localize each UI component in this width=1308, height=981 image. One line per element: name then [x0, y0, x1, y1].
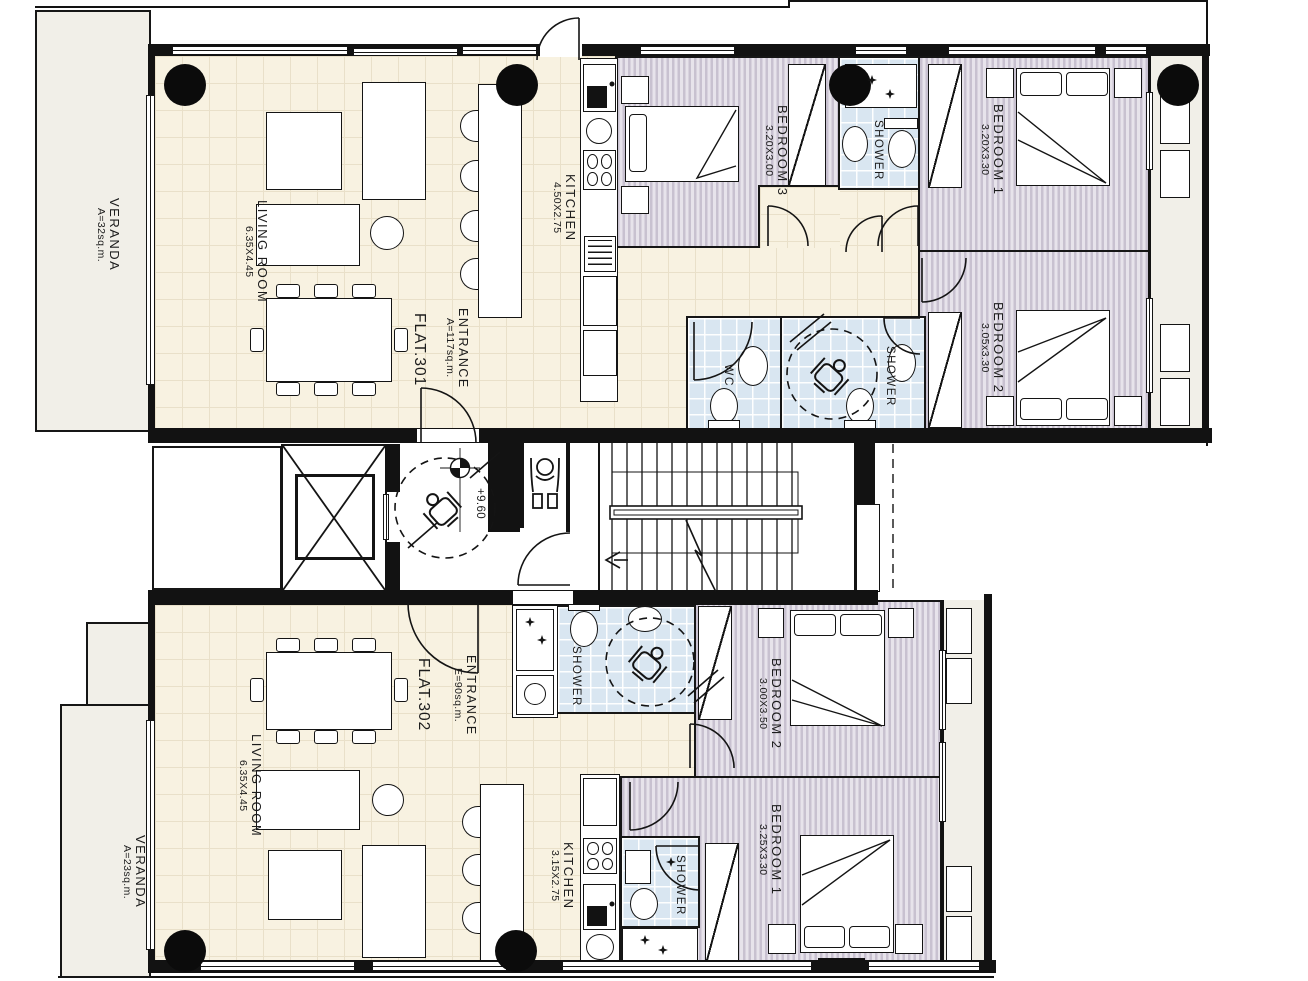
veranda-302-step — [86, 622, 151, 708]
ac-unit — [1160, 378, 1190, 426]
ac-unit — [946, 658, 972, 704]
dining-chair — [352, 382, 376, 396]
wardrobe — [928, 64, 962, 188]
dining-chair — [250, 328, 264, 352]
pillow — [1020, 398, 1062, 420]
window-wall-veranda-301 — [146, 95, 155, 385]
toilet-icon — [630, 888, 658, 920]
nightstand — [768, 924, 796, 954]
entrance-301-label: ENTRANCE A=117sq.m. — [430, 296, 470, 400]
dining-chair — [352, 730, 376, 744]
window — [939, 650, 946, 730]
pillow — [1020, 72, 1062, 96]
kitchen-appliance-icon — [586, 934, 614, 960]
roof-edge — [788, 0, 790, 8]
ac-unit — [946, 608, 972, 654]
elevator-car — [295, 474, 375, 560]
window — [200, 961, 355, 971]
pillow — [1066, 72, 1108, 96]
wardrobe — [928, 312, 962, 428]
stove-icon — [583, 838, 617, 874]
toilet-icon — [888, 130, 916, 168]
ac-unit — [946, 916, 972, 962]
pillow — [1066, 398, 1108, 420]
loveseat — [256, 770, 360, 830]
wall — [385, 444, 400, 492]
coffee-table — [268, 850, 342, 920]
bedroom-2-302-label: BEDROOM 2 3.00X3.50 — [738, 650, 784, 758]
wall-segment — [818, 958, 865, 973]
bedroom-2-301-label: BEDROOM 2 3.05x3.30 — [960, 292, 1006, 404]
wardrobe — [788, 64, 826, 186]
window — [868, 961, 980, 971]
sofa — [362, 82, 426, 200]
shower-small-302-label: SHOWER — [660, 850, 686, 920]
kitchen-island-301 — [478, 84, 522, 318]
ac-unit — [1160, 324, 1190, 372]
wardrobe — [698, 606, 732, 720]
dining-chair — [352, 638, 376, 652]
wall — [520, 440, 524, 528]
dining-chair — [314, 638, 338, 652]
window — [462, 46, 537, 55]
toilet-tank-icon — [884, 118, 918, 129]
sink-basin-icon — [587, 906, 607, 926]
column — [164, 930, 206, 972]
living-301-label: LIVING ROOM 6.35X4.45 — [222, 192, 270, 312]
pillow — [794, 614, 836, 636]
bedroom-1-301-label: BEDROOM 1 3.20X3.30 — [960, 94, 1006, 206]
window — [1146, 92, 1153, 170]
dining-chair — [314, 382, 338, 396]
washbasin-icon — [628, 606, 662, 632]
pillow — [849, 926, 890, 948]
window — [948, 46, 1096, 55]
wall-right-302 — [984, 594, 992, 966]
shower-301-label: SHOWER — [858, 114, 884, 186]
nightstand — [1114, 396, 1142, 426]
wardrobe — [705, 843, 739, 965]
wall — [566, 440, 570, 532]
wall-mid — [148, 428, 1212, 443]
kitchen-cabinet — [583, 330, 617, 376]
kitchen-302-label: KITCHEN 3.15X2.75 — [530, 834, 576, 918]
door-opening — [513, 591, 573, 604]
veranda-301-label: VERANDA A=32sq.m. — [78, 150, 122, 320]
window — [855, 46, 907, 55]
window — [939, 742, 946, 822]
floor-plan: VERANDA A=32sq.m. LIVING ROOM 6.35X4.45 … — [0, 0, 1308, 981]
living-302-label: LIVING ROOM 6.35X4.45 — [216, 724, 264, 848]
column — [1157, 64, 1199, 106]
dining-chair — [276, 284, 300, 298]
seated-person-icon — [531, 458, 559, 508]
nightstand — [1114, 68, 1142, 98]
dining-chair — [276, 382, 300, 396]
window — [172, 46, 348, 55]
roof-edge — [58, 976, 994, 978]
window — [353, 48, 458, 56]
sink-basin-icon — [587, 86, 607, 108]
column — [164, 64, 206, 106]
window — [562, 961, 812, 971]
shower-tray — [622, 928, 698, 964]
shower-mid-301-label: SHOWER — [870, 340, 896, 412]
core-storage-room — [152, 446, 282, 590]
shower-tray — [516, 609, 554, 671]
nightstand — [621, 76, 649, 104]
side-table — [372, 784, 404, 816]
nightstand — [621, 186, 649, 214]
window — [372, 961, 507, 971]
dining-chair — [276, 730, 300, 744]
bedroom-1-302-label: BEDROOM 1 3.25X3.30 — [738, 796, 784, 904]
nightstand — [758, 608, 784, 638]
flat-301-label: FLAT.301 — [398, 300, 428, 400]
nightstand — [888, 608, 914, 638]
side-table — [370, 216, 404, 250]
elevator-door — [383, 494, 389, 540]
dining-chair — [250, 678, 264, 702]
nightstand — [895, 924, 923, 954]
kitchen-cabinet — [583, 276, 617, 326]
dining-chair — [352, 284, 376, 298]
washbasin-icon — [738, 346, 768, 386]
roof-edge — [788, 0, 1208, 2]
dining-table-301 — [266, 298, 392, 382]
window — [1146, 298, 1153, 393]
kitchen-301-label: KITCHEN 4.50X2.75 — [532, 160, 578, 256]
dining-chair — [314, 284, 338, 298]
wc-301-label: WC — [710, 352, 736, 398]
pillow — [804, 926, 845, 948]
ac-unit — [946, 866, 972, 912]
window — [1105, 46, 1147, 55]
roof-edge — [35, 6, 790, 8]
washbasin-icon — [625, 850, 651, 884]
bedroom-3-301-label: BEDROOM 3 3.20X3.00 — [742, 96, 790, 206]
pillow — [840, 614, 882, 636]
ac-unit — [1160, 150, 1190, 198]
door-opening — [417, 429, 479, 442]
pillow — [629, 114, 647, 172]
kitchen-cabinet — [583, 778, 617, 826]
flat-302-label: FLAT.302 — [400, 654, 432, 736]
vented-cabinet-icon — [584, 236, 616, 272]
coffee-table — [266, 112, 342, 190]
entrance-302-label: ENTRANCE E=90sq.m. — [438, 652, 478, 738]
column — [829, 64, 871, 106]
wall-pillar — [488, 440, 520, 532]
door-opening — [540, 43, 582, 57]
veranda-302-label: VERANDA A=23sq.m. — [100, 826, 148, 918]
wall — [855, 438, 875, 506]
kitchen-appliance-icon — [586, 118, 612, 144]
washing-machine-drum — [524, 683, 546, 705]
column — [495, 930, 537, 972]
wall-right-301 — [1202, 50, 1209, 442]
column — [496, 64, 538, 106]
staircase — [598, 438, 856, 592]
dining-chair — [314, 730, 338, 744]
window — [640, 46, 735, 55]
stove-icon — [583, 150, 616, 190]
stair-landing — [856, 504, 880, 592]
sofa — [362, 845, 426, 958]
shower-302-label: SHOWER — [556, 638, 582, 714]
dining-chair — [276, 638, 300, 652]
level-label: +9.60 — [464, 474, 486, 534]
wall — [385, 542, 400, 590]
loveseat — [256, 204, 360, 266]
dining-table-302 — [266, 652, 392, 730]
